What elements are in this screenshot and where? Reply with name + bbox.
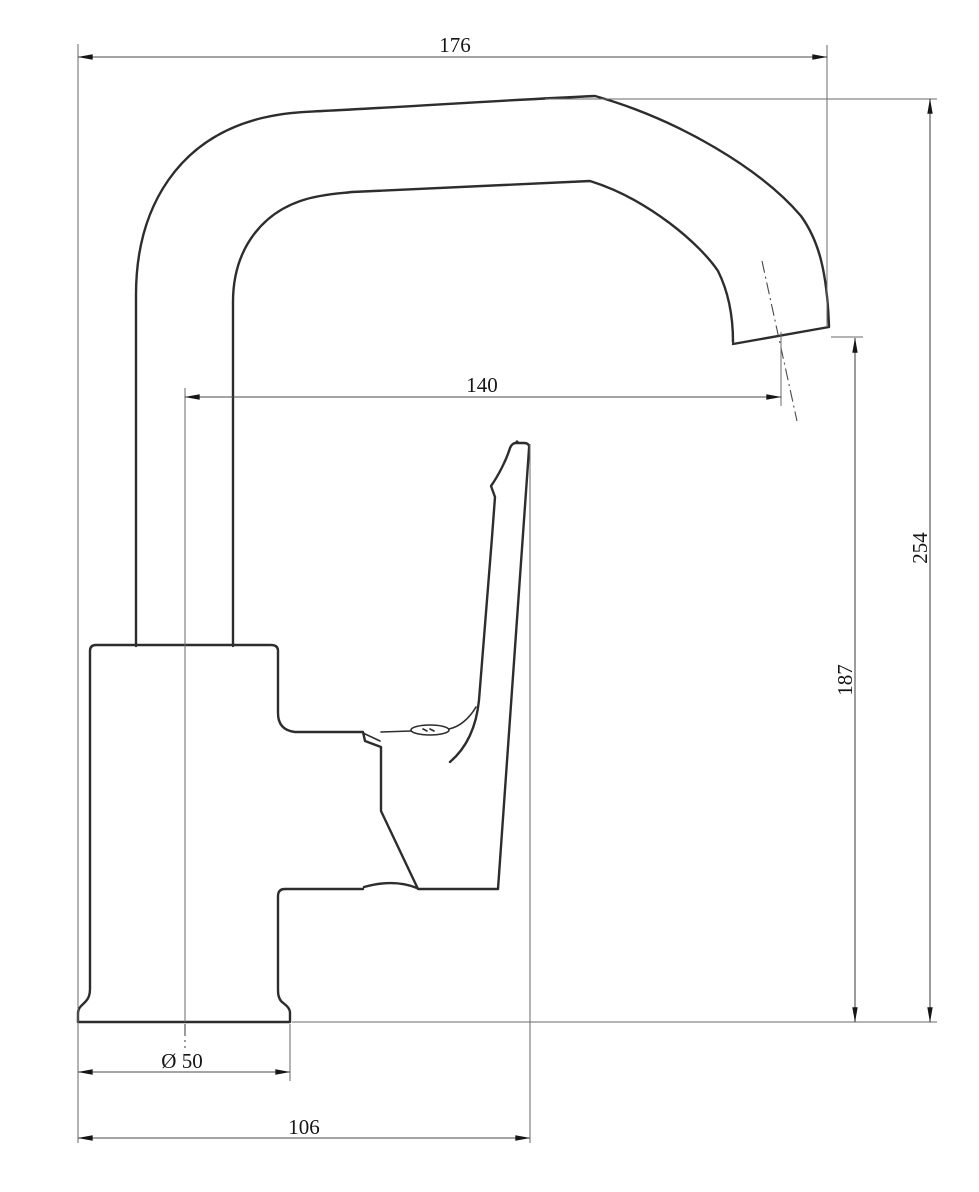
dim-label-base-diameter: Ø 50 xyxy=(161,1049,202,1073)
faucet-dimension-drawing: 176 140 254 187 Ø 50 106 xyxy=(0,0,979,1192)
dim-label-top-width: 176 xyxy=(439,33,471,57)
dim-label-spout-reach: 140 xyxy=(466,373,498,397)
cartridge-cap-ellipse xyxy=(411,725,449,735)
cartridge-cap-ticks xyxy=(423,729,434,731)
cartridge-left-line xyxy=(381,731,411,732)
dim-label-outlet-height: 187 xyxy=(833,664,857,696)
handle-tip-dot xyxy=(515,440,518,443)
lever-joint-curve xyxy=(449,707,476,729)
extension-lines xyxy=(78,44,937,1143)
dim-label-total-height: 254 xyxy=(908,532,932,564)
dim-label-base-span: 106 xyxy=(288,1115,320,1139)
body-base-handle-outline xyxy=(78,443,529,1022)
faucet-outline xyxy=(78,96,829,1022)
spout-outer-contour xyxy=(136,96,829,646)
technical-drawing-page: 176 140 254 187 Ø 50 106 xyxy=(0,0,979,1192)
body-step-bottom xyxy=(78,883,417,1022)
spout-inner-contour xyxy=(233,181,733,646)
